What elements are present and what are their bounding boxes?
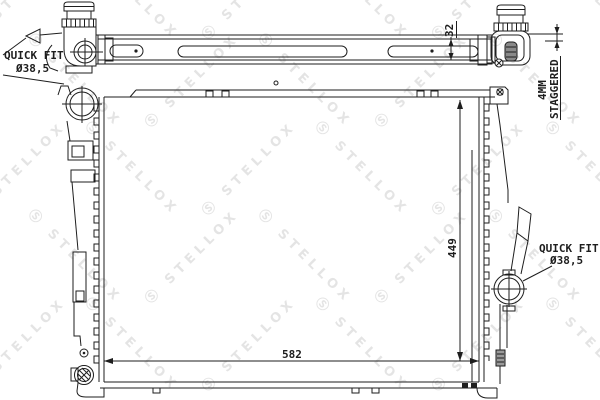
right-foot	[477, 388, 497, 398]
dim-bar-label: 32	[443, 24, 456, 37]
left-tank-profile	[58, 86, 102, 385]
right-inlet-fitting	[470, 5, 530, 67]
dim-stagger-label-line2: STAGGERED	[548, 59, 561, 119]
quick-fit-left-label: QUICK FIT	[4, 49, 64, 62]
right-tank-profile	[472, 104, 531, 384]
quick-fit-right-diameter: Ø38,5	[549, 254, 583, 267]
quick-fit-port-left	[58, 86, 102, 123]
dimension-height-449	[457, 100, 463, 361]
drain-plug	[75, 366, 94, 385]
quick-fit-left-diameter: Ø38,5	[15, 62, 49, 75]
side-bracket	[517, 207, 531, 241]
dim-height-label: 449	[446, 238, 459, 258]
dim-width-label: 582	[282, 348, 302, 361]
left-crimp-tabs	[94, 104, 99, 368]
quick-fit-port-right	[491, 270, 527, 311]
radiator-technical-drawing: QUICK FIT Ø38,5 QUICK FIT Ø38,5 582 449 …	[0, 0, 600, 400]
left-foot	[77, 383, 104, 397]
radiator-technical-drawing-page: Ⓢ STELLOXⓈ STELLOXⓈ STELLOXⓈ STELLOXⓈ ST…	[0, 0, 600, 400]
top-crossbar	[98, 35, 492, 64]
pointer-flag	[26, 29, 40, 43]
right-crimp-tabs	[484, 104, 489, 361]
